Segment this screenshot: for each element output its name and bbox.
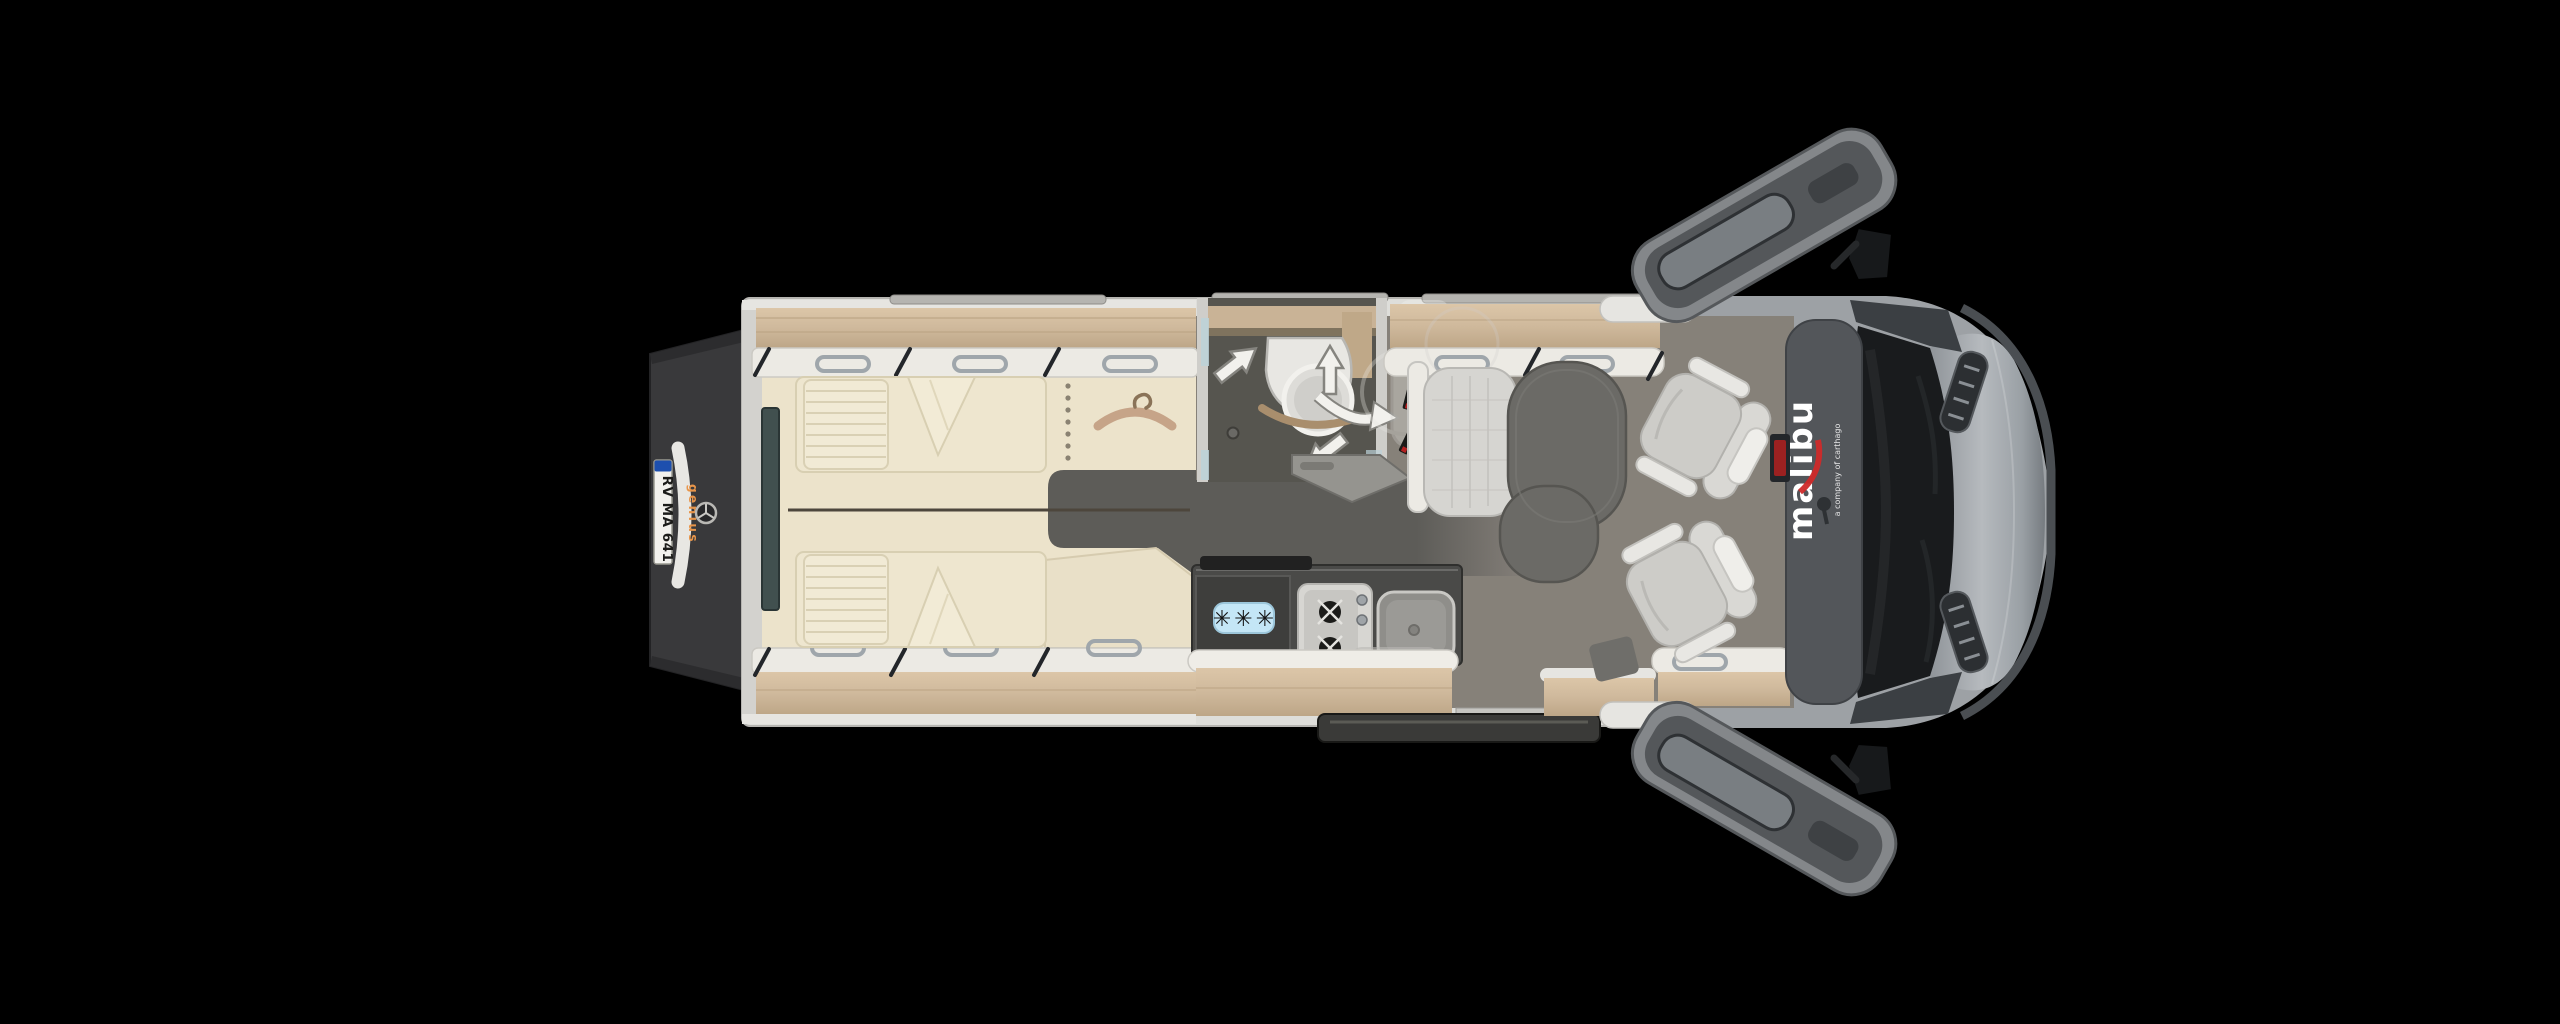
rear-window xyxy=(762,408,779,610)
stove-knob xyxy=(1357,615,1367,625)
kitchen-block: ✳✳✳ xyxy=(1188,556,1462,716)
burner xyxy=(1318,600,1342,624)
cab-roof-band: malibu a company of carthago xyxy=(1781,320,1862,704)
shower-glass xyxy=(1201,318,1209,366)
kitchen-backsplash xyxy=(1200,556,1312,570)
camper-floorplan-scene: RV MA 641 genius xyxy=(0,0,2560,1024)
kitchen-cabinet xyxy=(1196,668,1452,716)
rear-handle-trim xyxy=(678,448,685,582)
overhead-cabinet-top xyxy=(742,300,1198,377)
fridge-badge-text: ✳✳✳ xyxy=(1213,607,1277,632)
overhead-cabinet-bottom xyxy=(742,641,1198,724)
pillow xyxy=(804,555,888,644)
shower-drain-icon xyxy=(1228,428,1239,439)
mercedes-star-icon xyxy=(696,503,716,523)
bathroom xyxy=(1197,298,1410,502)
license-plate-text: RV MA 641 xyxy=(659,476,675,563)
living-area: ✳✳✳ xyxy=(742,293,1806,742)
stove-knob xyxy=(1357,595,1367,605)
swivel-washbasin xyxy=(1262,338,1352,434)
bed-bottom xyxy=(796,552,1046,647)
license-plate: RV MA 641 xyxy=(654,460,675,564)
shower-glass xyxy=(1201,450,1209,480)
eu-band xyxy=(655,461,672,472)
fire-extinguisher xyxy=(1770,434,1790,482)
pillow xyxy=(804,380,888,469)
bench-seat xyxy=(1408,362,1516,516)
roof-rail xyxy=(890,295,1106,304)
camper-floorplan-image: RV MA 641 genius xyxy=(0,0,2560,1024)
entry-step xyxy=(1318,714,1600,742)
bed-top xyxy=(796,377,1046,472)
fridge: ✳✳✳ xyxy=(1196,576,1290,662)
rear-door: RV MA 641 genius xyxy=(650,330,744,690)
sink-drain xyxy=(1409,625,1419,635)
roof-tagline-text: a company of carthago xyxy=(1833,424,1842,517)
bed-extension-cushion xyxy=(1045,548,1192,648)
